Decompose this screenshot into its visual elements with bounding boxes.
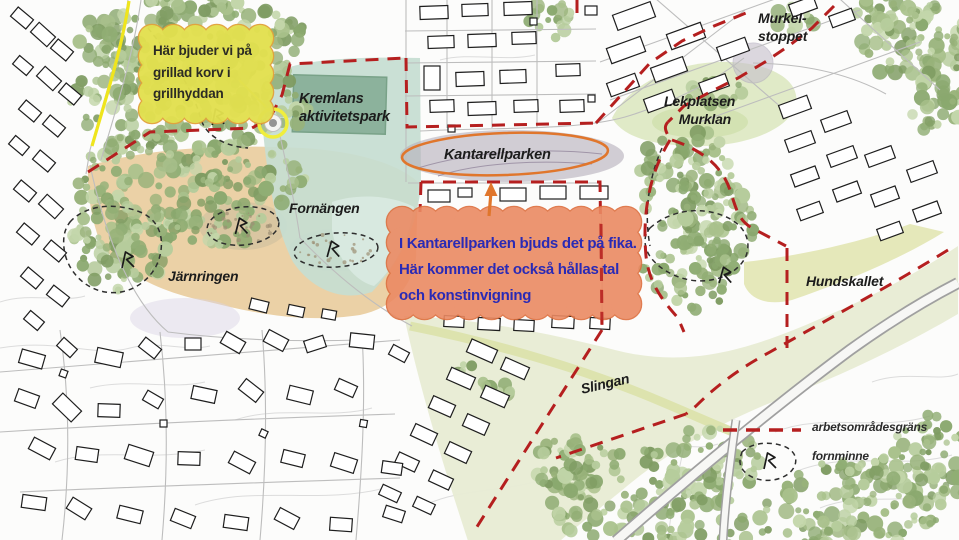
- label-kremlans-aktivitetspark: Kremlans aktivitetspark: [299, 90, 390, 126]
- label-lekplatsen-murklan: Lekplatsen Murklan: [664, 93, 735, 128]
- legend-label-arbetsomradesgrans: arbetsområdesgräns: [812, 420, 927, 434]
- label-hundskallet: Hundskallet: [806, 273, 883, 289]
- legend-label-fornminne: fornminne: [812, 449, 869, 463]
- label-jarnringen: Järnringen: [168, 268, 238, 284]
- grill-callout-text: Här bjuder vi på grillad korv i grillhyd…: [153, 40, 252, 105]
- label-fornangen: Fornängen: [289, 200, 360, 216]
- label-murkelstoppet: Murkel- stoppet: [758, 10, 807, 45]
- fika-callout-text: I Kantarellparken bjuds det på fika. Här…: [399, 231, 637, 308]
- planning-map: Här bjuder vi på grillad korv i grillhyd…: [0, 0, 959, 540]
- label-kantarellparken: Kantarellparken: [444, 147, 551, 164]
